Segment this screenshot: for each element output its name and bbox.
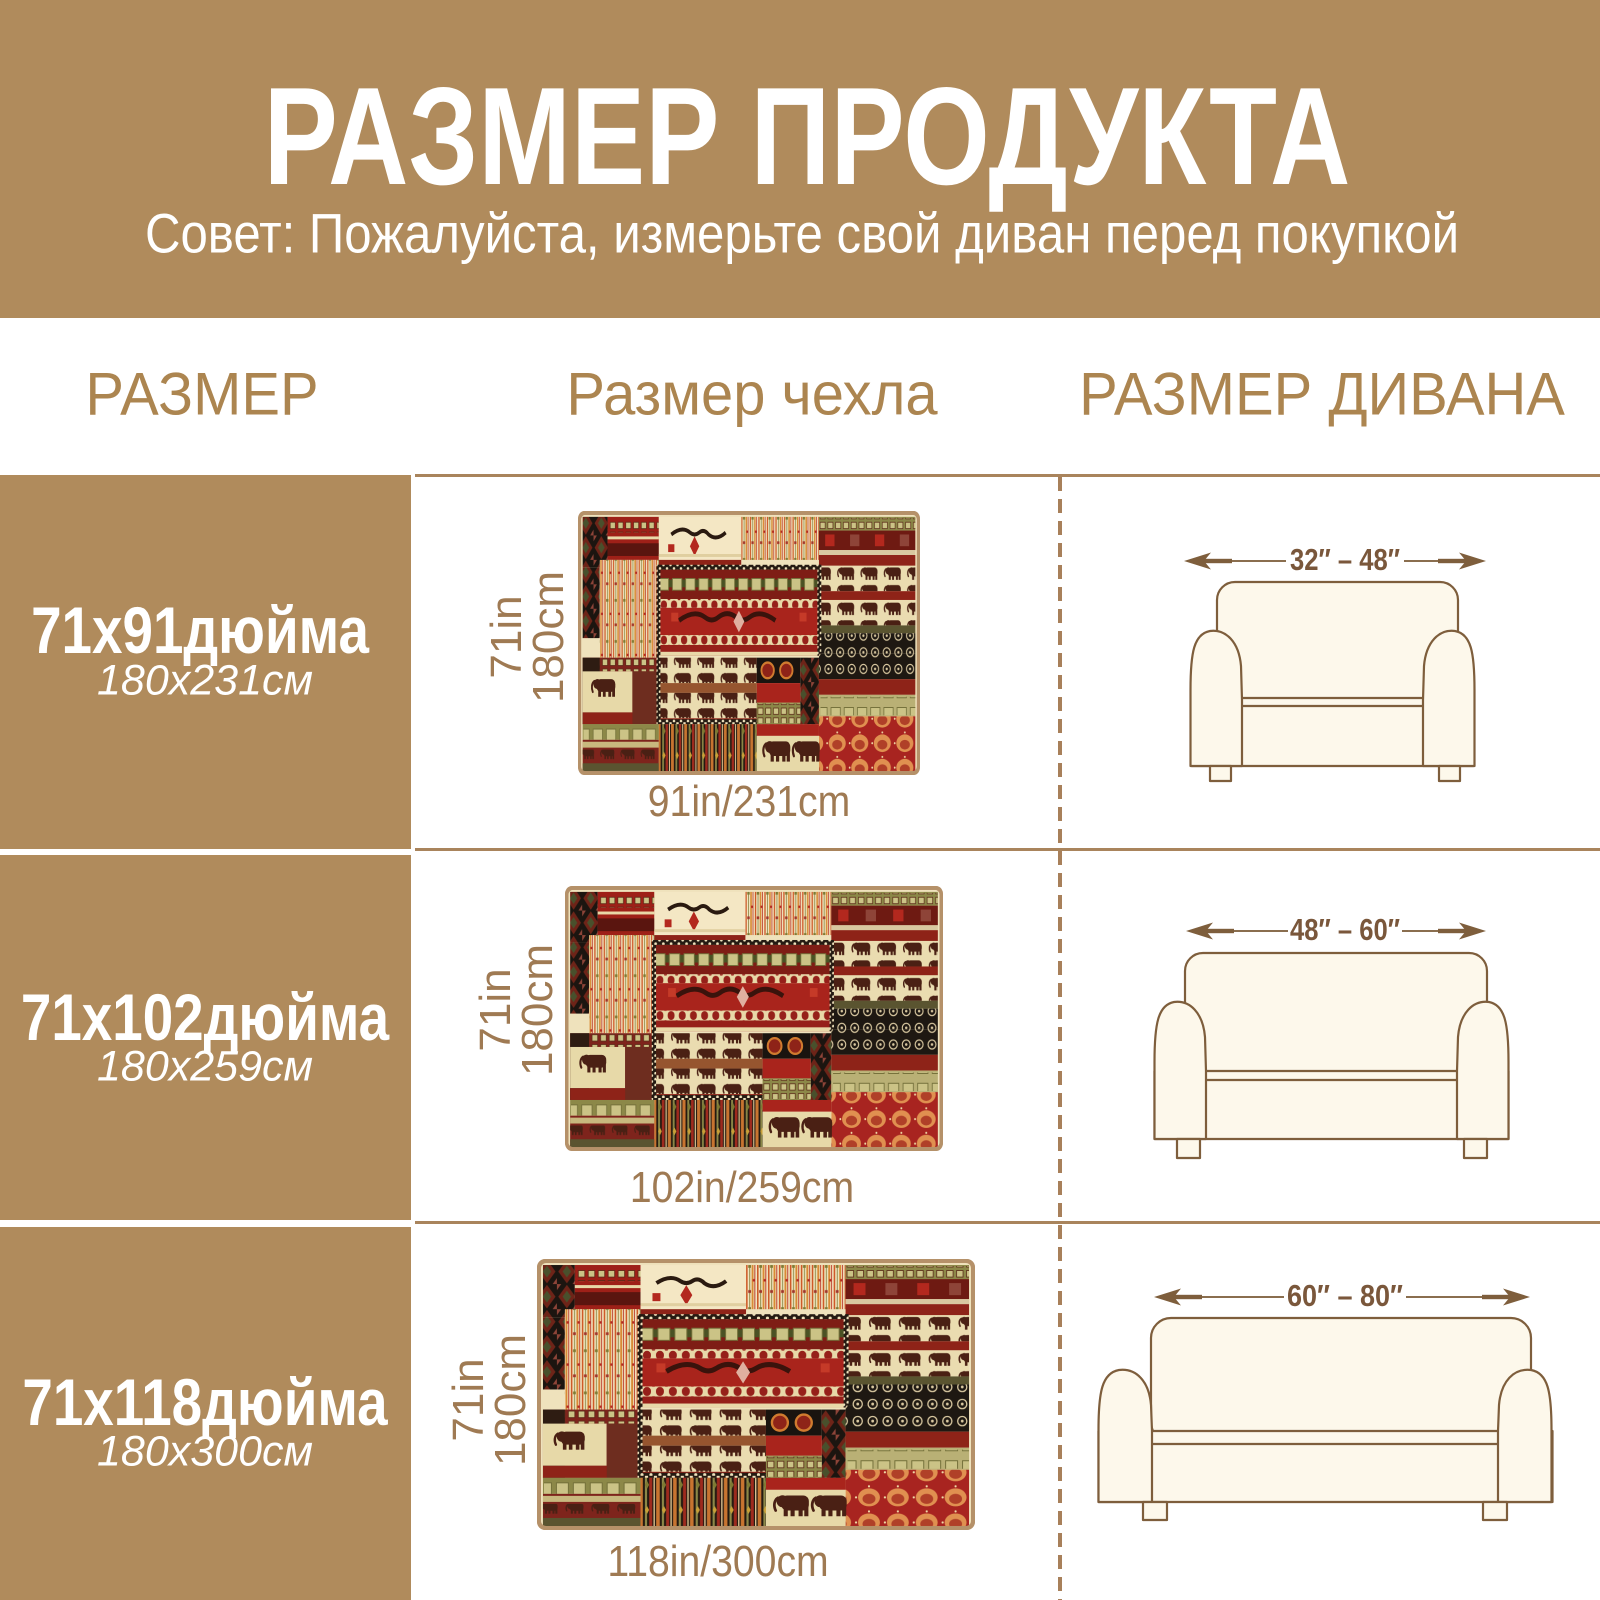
svg-text:60″ – 80″: 60″ – 80″ (1287, 1278, 1403, 1313)
svg-text:48″ – 60″: 48″ – 60″ (1290, 912, 1400, 947)
svg-text:32″ – 48″: 32″ – 48″ (1290, 542, 1400, 577)
